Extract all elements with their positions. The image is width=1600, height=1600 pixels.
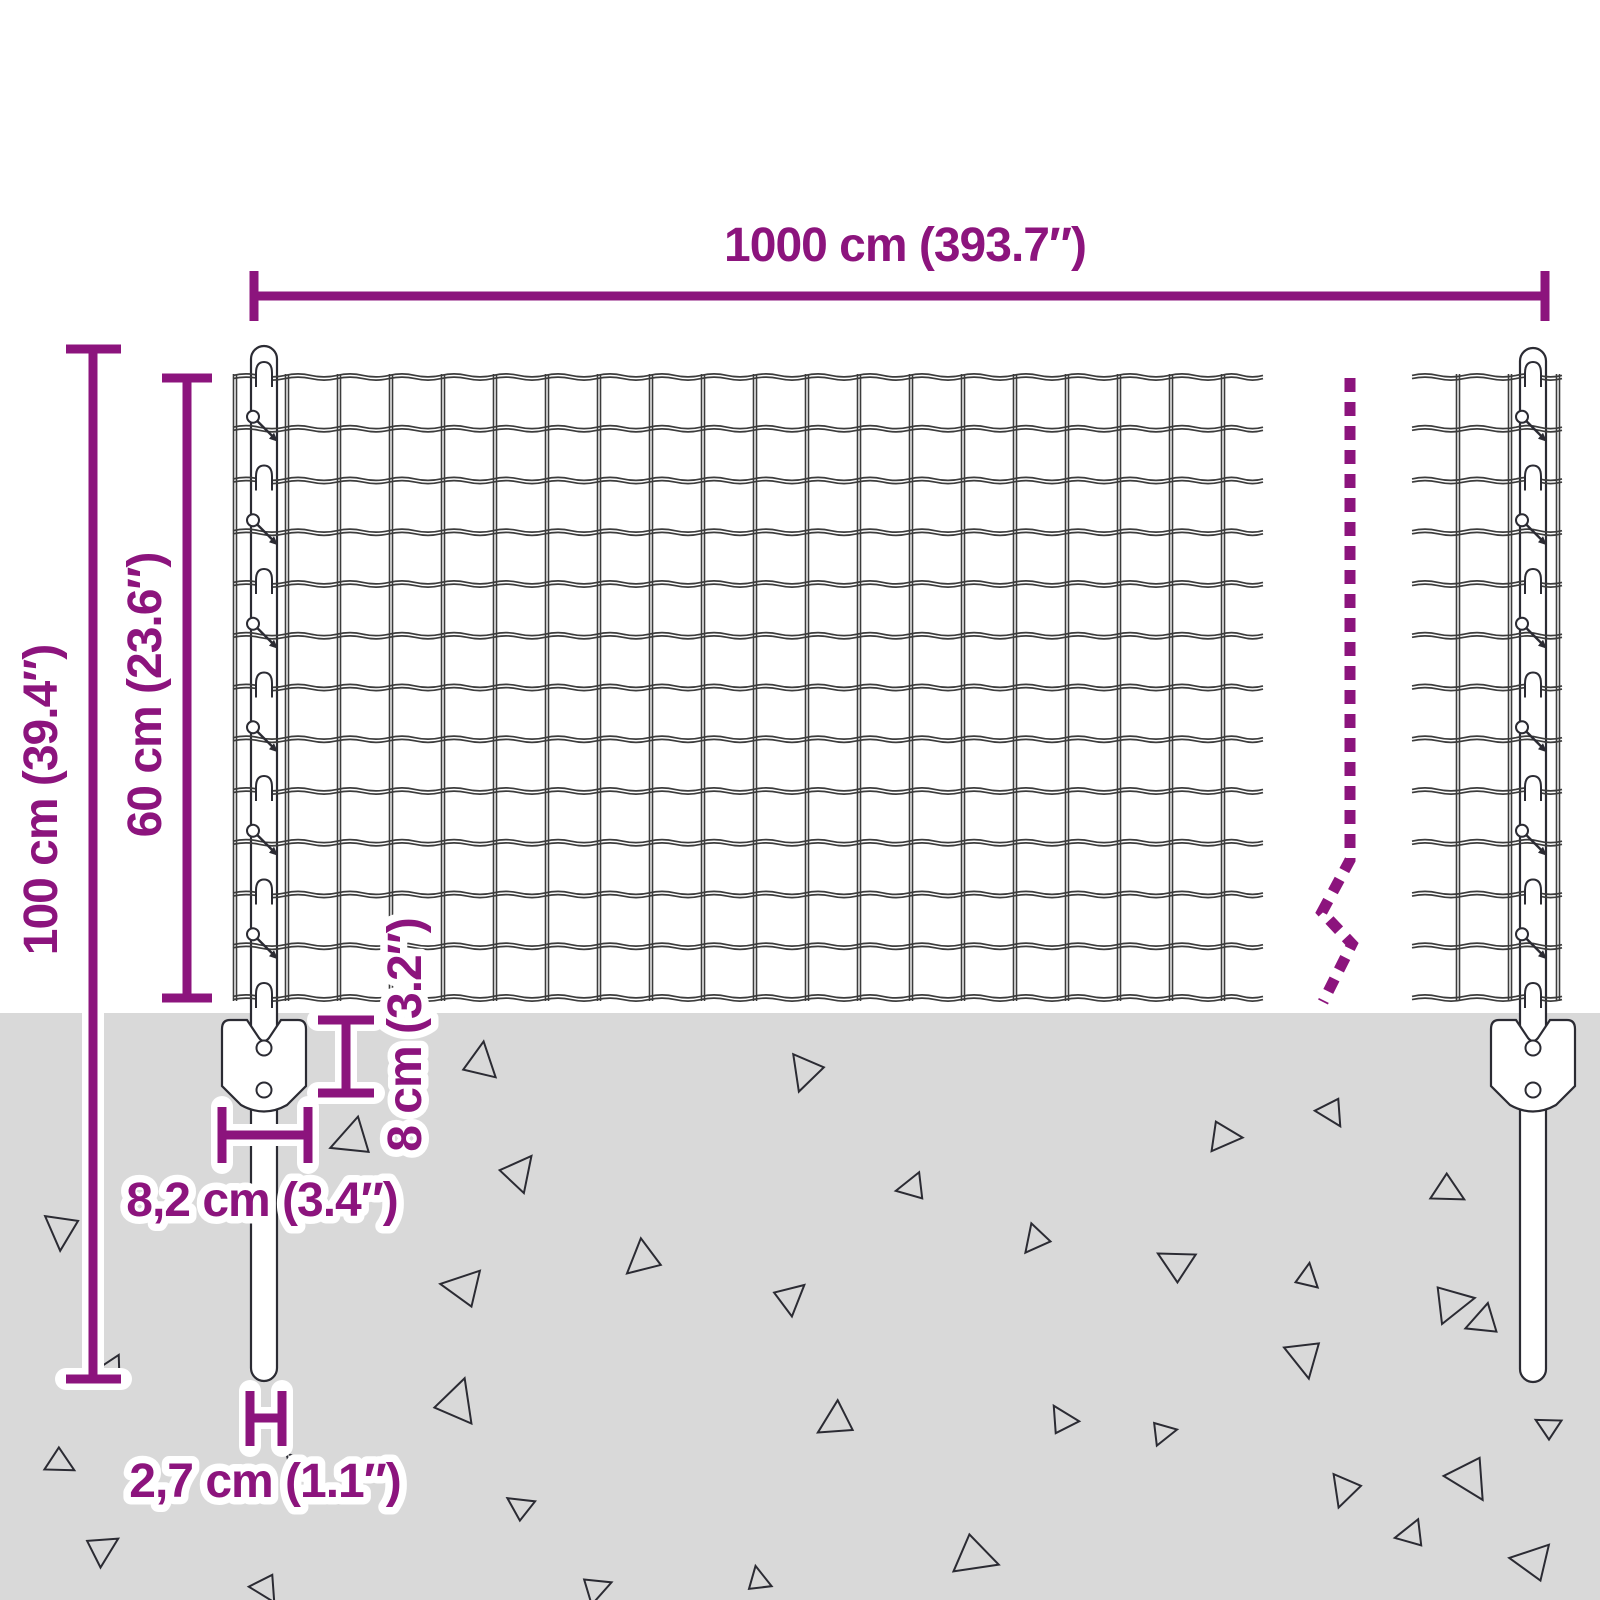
label-anchor-width: 8,2 cm (3.4″)	[126, 1174, 397, 1227]
mesh-horizontal-wire	[233, 374, 1263, 377]
mesh-horizontal-wire	[233, 788, 1263, 791]
label-post-diameter: 2,7 cm (1.1″)	[129, 1455, 400, 1508]
mesh-horizontal-wire	[233, 736, 1263, 739]
fixing-pin-head	[247, 411, 259, 423]
mesh-horizontal-wire	[233, 426, 1263, 429]
wire-staple-clip	[256, 466, 272, 491]
wire-mesh	[233, 374, 1562, 1001]
fixing-pin-head	[1516, 514, 1528, 526]
wire-staple-clip	[1525, 673, 1541, 698]
label-fence-height: 60 cm (23.6″)	[119, 553, 172, 838]
dim-total-width	[254, 271, 1545, 321]
fixing-pin-head	[1516, 928, 1528, 940]
mesh-horizontal-wire	[233, 840, 1263, 843]
wire-staple-clip	[1525, 776, 1541, 801]
fixing-pin-head	[1516, 721, 1528, 733]
fixing-pin-head	[247, 514, 259, 526]
wire-staple-clip	[256, 673, 272, 698]
fixing-pin-head	[1516, 825, 1528, 837]
label-total-width: 1000 cm (393.7″)	[724, 219, 1086, 272]
wire-staple-clip	[256, 362, 272, 387]
break-dashed-line	[1322, 378, 1352, 1002]
fixing-pin-head	[1516, 411, 1528, 423]
wire-staple-clip	[256, 880, 272, 905]
label-post-height: 100 cm (39.4″)	[15, 645, 68, 956]
wire-staple-clip	[1525, 880, 1541, 905]
fixing-pin-head	[1516, 618, 1528, 630]
wire-staple-clip	[1525, 362, 1541, 387]
mesh-horizontal-wire	[233, 684, 1263, 687]
right-post	[1520, 348, 1546, 1382]
mesh-horizontal-wire	[233, 477, 1263, 480]
fixing-pin-head	[247, 618, 259, 630]
wire-staple-clip	[1525, 466, 1541, 491]
label-anchor-depth: 8 cm (3.2″)	[379, 918, 432, 1151]
mesh-horizontal-wire	[233, 581, 1263, 584]
fence-dimension-diagram: 1000 cm (393.7″) 100 cm (39.4″) 60 cm (2…	[0, 0, 1600, 1600]
mesh-horizontal-wire	[233, 529, 1263, 532]
mesh-horizontal-wire	[233, 633, 1263, 636]
mesh-horizontal-wire	[233, 891, 1263, 894]
fixing-pin-head	[247, 721, 259, 733]
wire-staple-clip	[1525, 569, 1541, 594]
wire-staple-clip	[256, 983, 272, 1008]
fixing-pin-head	[247, 928, 259, 940]
wire-staple-clip	[1525, 983, 1541, 1008]
wire-staple-clip	[256, 569, 272, 594]
wire-staple-clip	[256, 776, 272, 801]
fixing-pin-head	[247, 825, 259, 837]
